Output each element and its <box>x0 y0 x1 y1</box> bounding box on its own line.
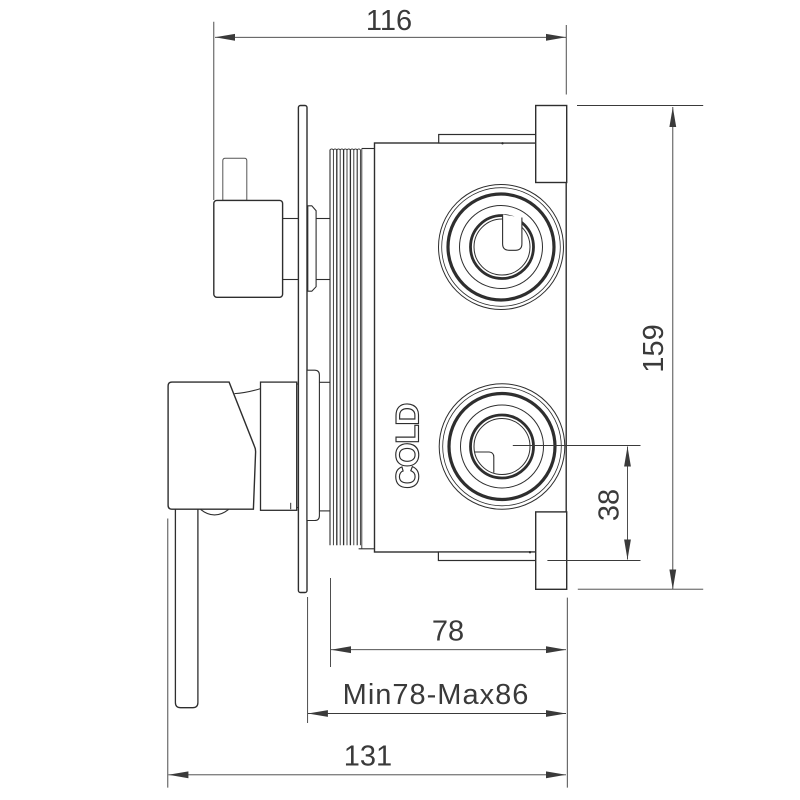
svg-text:78: 78 <box>432 615 464 647</box>
svg-text:COLD: COLD <box>390 404 426 489</box>
svg-text:159: 159 <box>638 324 670 372</box>
svg-text:116: 116 <box>366 5 412 37</box>
svg-text:Min78-Max86: Min78-Max86 <box>343 679 530 711</box>
svg-text:38: 38 <box>593 489 625 521</box>
svg-text:131: 131 <box>344 741 392 773</box>
